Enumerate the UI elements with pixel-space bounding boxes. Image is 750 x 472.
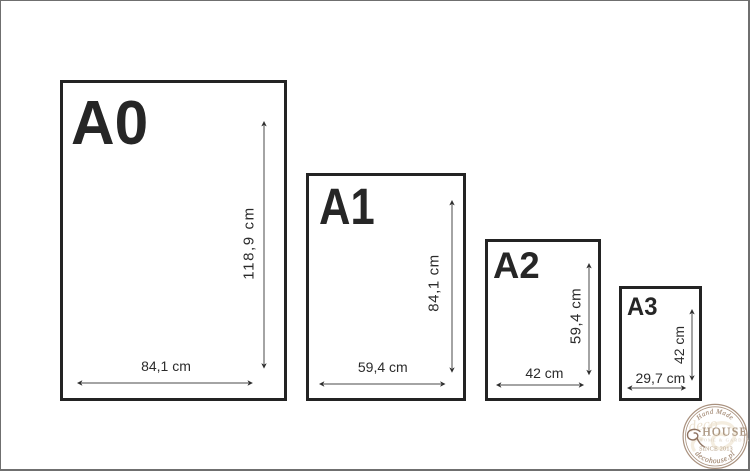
svg-text:HOUSE: HOUSE [702, 424, 748, 438]
svg-text:HOME & GARDEN: HOME & GARDEN [699, 438, 750, 443]
svg-text:SINCE 2013: SINCE 2013 [699, 446, 733, 452]
